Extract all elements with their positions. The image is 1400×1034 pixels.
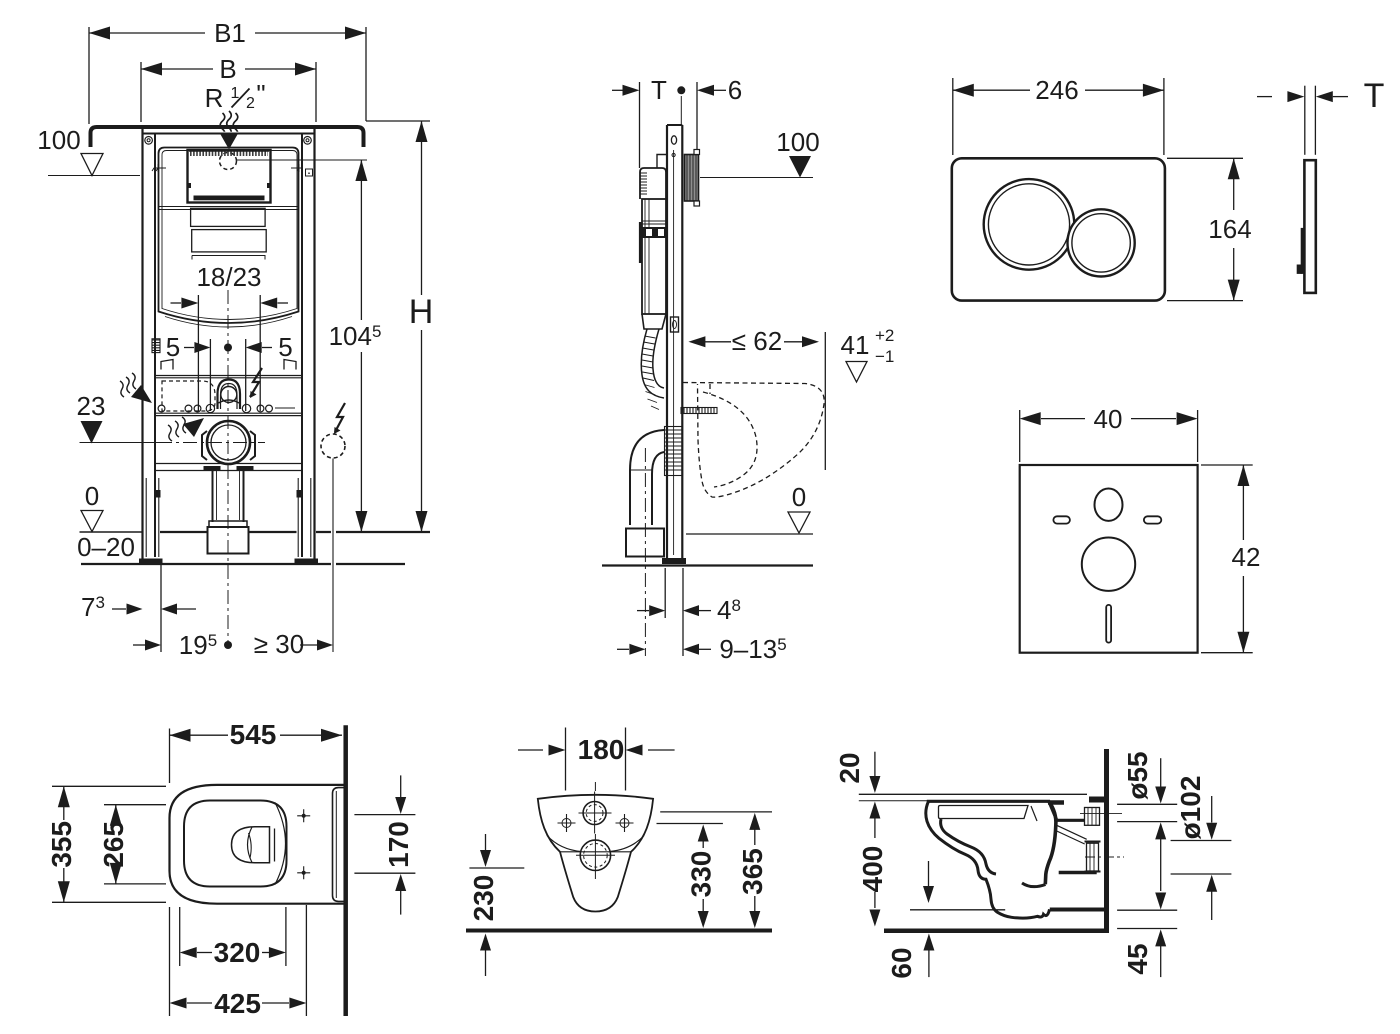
svg-text:170: 170 <box>383 821 414 868</box>
svg-text:5: 5 <box>166 332 180 362</box>
svg-text:40: 40 <box>1094 404 1123 434</box>
svg-text:18/23: 18/23 <box>196 262 261 292</box>
svg-text:20: 20 <box>834 752 865 783</box>
svg-text:5: 5 <box>278 332 292 362</box>
svg-text:0: 0 <box>792 482 806 512</box>
svg-text:100: 100 <box>776 127 819 157</box>
svg-text:B: B <box>219 54 236 84</box>
svg-text:2: 2 <box>246 95 255 112</box>
svg-text:23: 23 <box>77 391 106 421</box>
svg-text:230: 230 <box>468 875 499 922</box>
svg-text:": " <box>256 79 265 109</box>
svg-text:42: 42 <box>1232 542 1261 572</box>
svg-text:400: 400 <box>857 846 888 893</box>
svg-text:ø55: ø55 <box>1122 751 1153 799</box>
svg-text:B1: B1 <box>214 18 246 48</box>
svg-text:330: 330 <box>686 851 717 898</box>
svg-text:R: R <box>205 83 224 113</box>
svg-text:355: 355 <box>46 821 77 868</box>
svg-text:320: 320 <box>214 937 261 968</box>
svg-text:T: T <box>651 75 667 105</box>
svg-text:246: 246 <box>1035 75 1078 105</box>
svg-text:T: T <box>1364 77 1385 115</box>
svg-text:60: 60 <box>886 947 917 978</box>
svg-text:≥ 30: ≥ 30 <box>254 629 304 659</box>
svg-text:ø102: ø102 <box>1175 776 1206 840</box>
svg-text:425: 425 <box>214 988 261 1019</box>
svg-text:−1: −1 <box>875 347 894 366</box>
svg-text:6: 6 <box>728 75 742 105</box>
svg-text:9–135: 9–135 <box>719 634 786 664</box>
svg-text:100: 100 <box>37 125 80 155</box>
svg-text:0: 0 <box>85 481 99 511</box>
svg-text:0–20: 0–20 <box>77 532 135 562</box>
svg-text:H: H <box>409 293 434 331</box>
svg-text:≤ 62: ≤ 62 <box>732 326 782 356</box>
svg-text:45: 45 <box>1122 943 1153 974</box>
svg-text:41: 41 <box>841 330 870 360</box>
svg-text:545: 545 <box>230 719 277 750</box>
svg-text:180: 180 <box>578 734 625 765</box>
svg-text:164: 164 <box>1208 214 1251 244</box>
svg-text:+2: +2 <box>875 326 894 345</box>
svg-text:265: 265 <box>98 821 129 868</box>
svg-text:365: 365 <box>737 848 768 895</box>
